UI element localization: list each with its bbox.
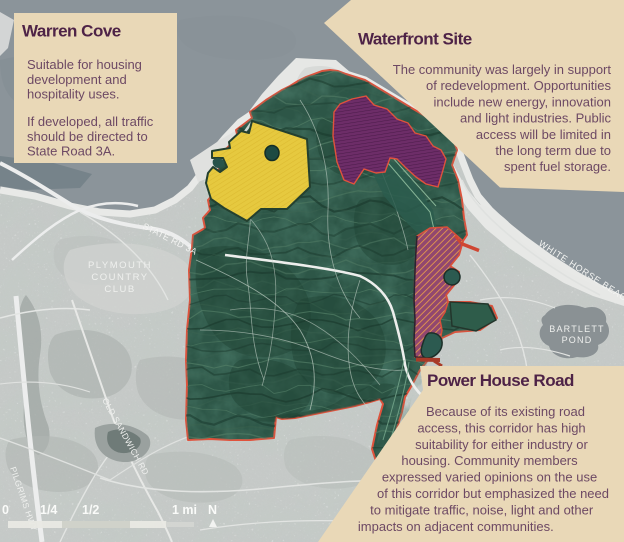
svg-text:CLUB: CLUB [104, 284, 135, 295]
svg-text:Waterfront Site: Waterfront Site [358, 30, 472, 49]
svg-text:development and: development and [27, 72, 127, 87]
svg-text:of redevelopment. Opportunitie: of redevelopment. Opportunities [426, 78, 611, 93]
svg-text:of this corridor but emphasize: of this corridor but emphasized the need [377, 486, 609, 501]
svg-text:0: 0 [2, 503, 9, 517]
svg-text:to mitigate traffic, noise, li: to mitigate traffic, noise, light and ot… [370, 502, 594, 517]
svg-text:housing. Community members: housing. Community members [401, 453, 578, 468]
svg-text:1/4: 1/4 [40, 503, 57, 517]
svg-text:State Road 3A.: State Road 3A. [27, 144, 115, 159]
svg-text:Because of its existing road: Because of its existing road [426, 404, 585, 419]
svg-text:impacts on adjacent communitie: impacts on adjacent communities. [358, 519, 554, 534]
svg-text:Power House Road: Power House Road [427, 371, 574, 390]
svg-text:and light industries. Public: and light industries. Public [460, 111, 612, 126]
svg-text:access will be limited in: access will be limited in [476, 127, 611, 142]
svg-text:1 mi: 1 mi [172, 503, 197, 517]
svg-text:should be directed to: should be directed to [27, 129, 148, 144]
svg-text:COUNTRY: COUNTRY [91, 272, 148, 283]
svg-text:access, this corridor has high: access, this corridor has high [417, 420, 585, 435]
svg-text:the long term due to: the long term due to [495, 143, 611, 158]
svg-text:N: N [208, 503, 217, 517]
svg-text:spent fuel storage.: spent fuel storage. [504, 159, 611, 174]
svg-text:Suitable for housing: Suitable for housing [27, 57, 142, 72]
svg-text:The community was largely in s: The community was largely in support [393, 62, 612, 77]
svg-text:suitability for either industr: suitability for either industry or [415, 437, 588, 452]
svg-text:expressed varied opinions on t: expressed varied opinions on the use [382, 470, 597, 485]
svg-text:1/2: 1/2 [82, 503, 99, 517]
svg-text:Warren Cove: Warren Cove [22, 22, 121, 41]
svg-text:hospitality uses.: hospitality uses. [27, 87, 120, 102]
svg-text:POND: POND [562, 335, 593, 345]
svg-text:include new energy, innovation: include new energy, innovation [433, 94, 611, 109]
svg-text:If developed, all traffic: If developed, all traffic [27, 114, 154, 129]
svg-text:PLYMOUTH: PLYMOUTH [88, 260, 152, 271]
svg-text:BARTLETT: BARTLETT [549, 324, 604, 334]
